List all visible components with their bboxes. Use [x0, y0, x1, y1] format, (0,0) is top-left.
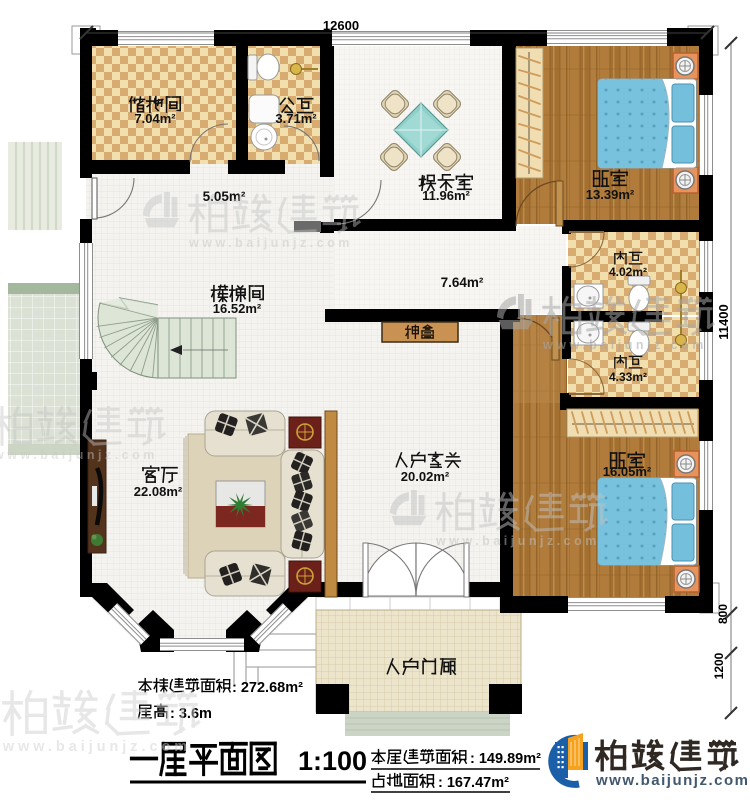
- svg-text:: 149.89m²: : 149.89m²: [470, 751, 541, 767]
- svg-text:7.64m²: 7.64m²: [441, 275, 484, 290]
- svg-text:16.52m²: 16.52m²: [213, 301, 262, 316]
- svg-text:: 272.68m²: : 272.68m²: [232, 680, 303, 696]
- svg-text:www.baijunjz.com: www.baijunjz.com: [188, 236, 353, 250]
- svg-text:: 167.47m²: : 167.47m²: [438, 775, 509, 791]
- svg-text:www.baijunjz.com: www.baijunjz.com: [595, 772, 749, 789]
- svg-text:11400: 11400: [716, 304, 731, 339]
- svg-text:11.96m²: 11.96m²: [422, 188, 470, 203]
- svg-text:3.71m²: 3.71m²: [275, 111, 317, 126]
- svg-text:www.baijunjz.com: www.baijunjz.com: [2, 739, 191, 755]
- svg-text:: 3.6m: : 3.6m: [170, 706, 212, 722]
- svg-text:12600: 12600: [323, 18, 359, 33]
- svg-text:20.02m²: 20.02m²: [401, 469, 450, 484]
- svg-text:16.05m²: 16.05m²: [603, 464, 652, 479]
- svg-text:13.39m²: 13.39m²: [586, 187, 635, 202]
- svg-text:800: 800: [716, 604, 730, 624]
- svg-text:1:100: 1:100: [298, 746, 367, 776]
- svg-text:7.04m²: 7.04m²: [134, 111, 176, 126]
- svg-text:www.baijunjz.com: www.baijunjz.com: [542, 338, 707, 352]
- svg-text:22.08m²: 22.08m²: [134, 484, 183, 499]
- svg-text:1200: 1200: [712, 652, 726, 679]
- svg-text:www.baijunjz.com: www.baijunjz.com: [435, 534, 600, 548]
- svg-text:4.33m²: 4.33m²: [609, 370, 647, 384]
- svg-text:4.02m²: 4.02m²: [609, 265, 647, 279]
- svg-text:www.baijunjz.com: www.baijunjz.com: [0, 448, 158, 462]
